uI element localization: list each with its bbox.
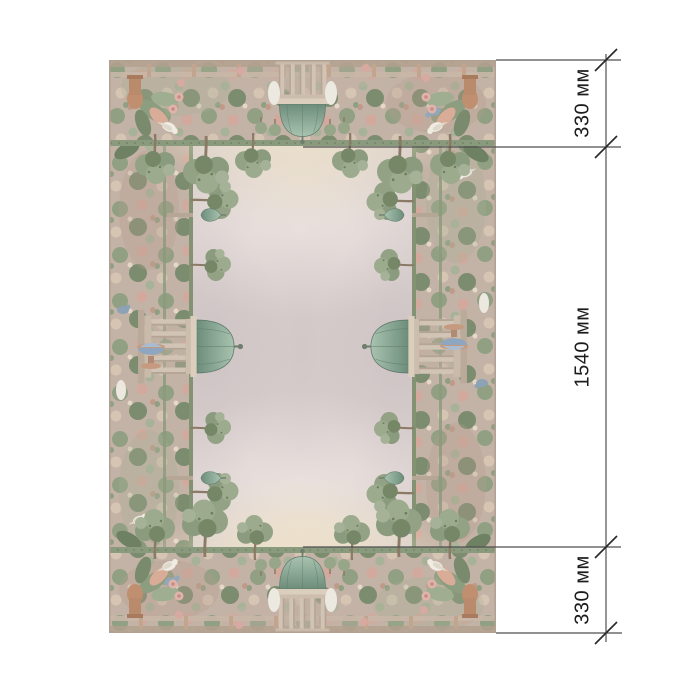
tick-mark-bottom xyxy=(595,622,617,644)
panel-border-bottom xyxy=(109,500,496,634)
dimension-label-bottom-border: 330 мм xyxy=(572,555,595,624)
mural-panel-image xyxy=(109,60,496,633)
mural-panel-graphic xyxy=(109,60,496,633)
tick-mark-inner-top xyxy=(595,136,617,158)
dimension-label-top-border: 330 мм xyxy=(572,68,595,137)
tick-mark-top xyxy=(595,49,617,71)
panel-border-top xyxy=(109,60,496,194)
product-dimension-drawing: 330 мм 1540 мм 330 мм xyxy=(0,0,700,700)
tick-mark-inner-bottom xyxy=(595,536,617,558)
dimension-label-center-field: 1540 мм xyxy=(572,306,595,387)
